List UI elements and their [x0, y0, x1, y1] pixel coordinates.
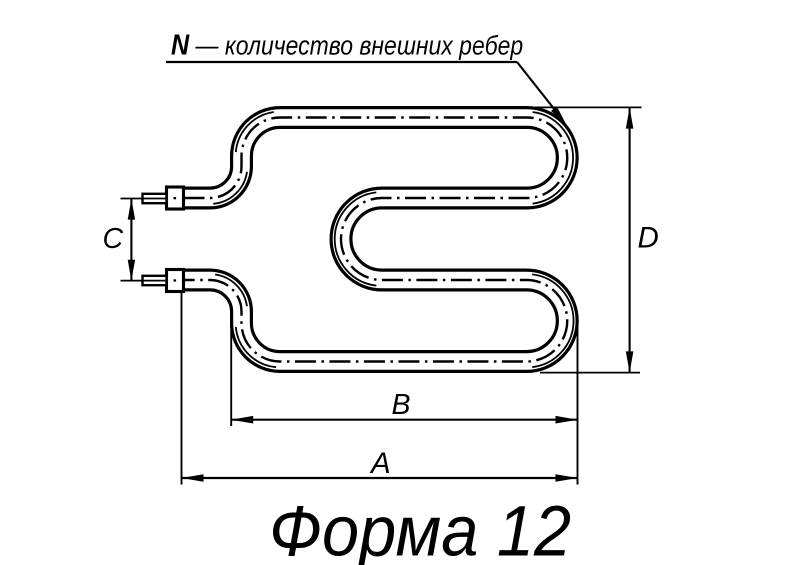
svg-text:A: A — [369, 447, 391, 480]
svg-text:Форма 12: Форма 12 — [269, 492, 571, 565]
svg-text:D: D — [638, 222, 659, 255]
svg-text:C: C — [103, 223, 124, 255]
svg-text:B: B — [392, 389, 411, 421]
svg-text:N — количество внешних ребер: N — количество внешних ребер — [171, 28, 523, 61]
